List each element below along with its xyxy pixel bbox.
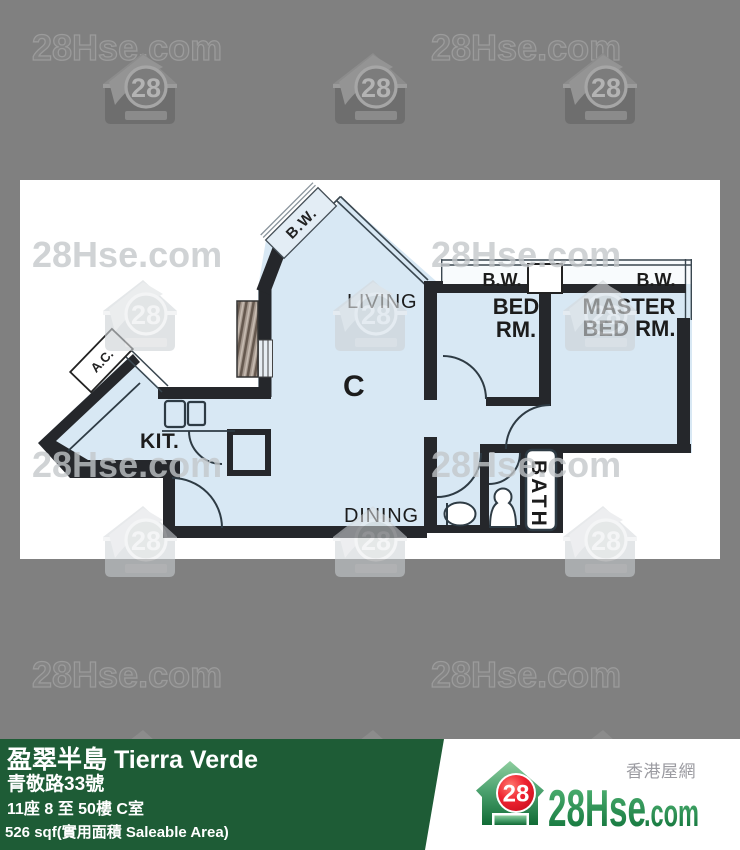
svg-text:青敬路33號: 青敬路33號 <box>7 772 104 795</box>
svg-text:28: 28 <box>131 300 161 330</box>
svg-text:28Hse.com: 28Hse.com <box>431 654 621 695</box>
svg-text:28: 28 <box>361 73 391 103</box>
svg-text:28: 28 <box>591 300 621 330</box>
svg-text:.com: .com <box>644 791 699 834</box>
svg-text:盈翠半島 Tierra Verde: 盈翠半島 Tierra Verde <box>7 745 258 774</box>
svg-text:28: 28 <box>591 73 621 103</box>
svg-text:香港屋網: 香港屋網 <box>626 762 696 781</box>
svg-text:28Hse.com: 28Hse.com <box>32 654 222 695</box>
svg-text:C: C <box>343 370 365 403</box>
svg-text:B.W.: B.W. <box>637 270 676 290</box>
svg-text:28Hse.com: 28Hse.com <box>431 234 621 275</box>
svg-text:11座 8 至 50樓 C室: 11座 8 至 50樓 C室 <box>7 799 144 818</box>
svg-text:28Hse.com: 28Hse.com <box>32 27 222 68</box>
svg-text:28: 28 <box>361 526 391 556</box>
svg-text:28: 28 <box>131 73 161 103</box>
svg-text:28Hse.com: 28Hse.com <box>32 234 222 275</box>
svg-text:RM.: RM. <box>496 317 536 342</box>
svg-text:28: 28 <box>591 526 621 556</box>
svg-text:BED: BED <box>493 294 539 319</box>
svg-text:28Hse.com: 28Hse.com <box>431 444 621 485</box>
svg-text:28: 28 <box>361 300 391 330</box>
svg-text:28Hse.com: 28Hse.com <box>32 444 222 485</box>
svg-text:28: 28 <box>503 781 530 808</box>
svg-text:28Hse: 28Hse <box>548 780 646 838</box>
svg-text:526 sqf(實用面積 Saleable Area): 526 sqf(實用面積 Saleable Area) <box>5 823 229 841</box>
svg-text:28: 28 <box>131 526 161 556</box>
